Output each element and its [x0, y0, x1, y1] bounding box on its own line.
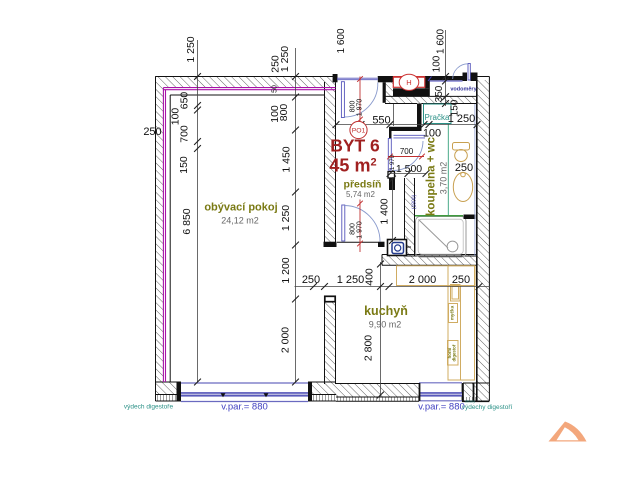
- svg-text:Pračka: Pračka: [425, 113, 450, 122]
- svg-text:1 250: 1 250: [185, 36, 197, 62]
- svg-text:v.par.= 880: v.par.= 880: [418, 402, 465, 413]
- svg-text:1 970: 1 970: [357, 221, 364, 239]
- svg-text:1 600: 1 600: [336, 28, 347, 53]
- svg-text:250: 250: [455, 162, 473, 174]
- svg-text:vodoměry: vodoměry: [450, 87, 477, 93]
- svg-text:2 000: 2 000: [409, 274, 437, 286]
- svg-text:H: H: [406, 78, 411, 87]
- svg-text:24,12 m2: 24,12 m2: [221, 216, 259, 226]
- svg-text:1 250: 1 250: [337, 274, 365, 286]
- svg-text:100: 100: [432, 55, 443, 72]
- svg-text:1 450: 1 450: [281, 146, 293, 172]
- svg-text:1 500: 1 500: [396, 163, 422, 175]
- svg-text:700: 700: [400, 147, 414, 156]
- svg-text:3,70 m2: 3,70 m2: [439, 162, 449, 195]
- svg-text:800: 800: [350, 101, 357, 113]
- svg-text:6 850: 6 850: [181, 208, 193, 234]
- svg-text:myčka: myčka: [450, 305, 455, 320]
- svg-text:digestoř: digestoř: [452, 344, 457, 361]
- svg-text:5,74 m2: 5,74 m2: [346, 190, 375, 199]
- svg-text:2 000: 2 000: [280, 327, 292, 353]
- svg-text:250: 250: [302, 274, 320, 286]
- svg-text:předsíň: předsíň: [344, 179, 382, 191]
- svg-text:1 250: 1 250: [280, 205, 292, 231]
- svg-text:50: 50: [272, 85, 279, 93]
- svg-text:150: 150: [178, 156, 190, 174]
- svg-text:250: 250: [452, 274, 470, 286]
- svg-text:1 600: 1 600: [436, 29, 447, 54]
- svg-text:výdechy digestoří: výdechy digestoří: [462, 404, 513, 411]
- svg-text:100: 100: [170, 108, 182, 126]
- svg-text:(1800): (1800): [412, 194, 418, 209]
- svg-text:obývací pokoj: obývací pokoj: [204, 202, 277, 214]
- svg-text:650: 650: [179, 92, 191, 110]
- svg-text:1 250: 1 250: [279, 46, 291, 72]
- svg-text:1 200: 1 200: [280, 257, 292, 283]
- svg-text:1 970: 1 970: [357, 99, 364, 117]
- svg-text:400: 400: [364, 268, 376, 286]
- svg-text:PO1: PO1: [352, 128, 366, 135]
- svg-text:45 m2: 45 m2: [329, 156, 376, 176]
- svg-text:250: 250: [143, 126, 161, 138]
- svg-text:otvory: otvory: [465, 400, 475, 404]
- svg-text:BYT 6: BYT 6: [330, 136, 380, 156]
- svg-text:800: 800: [350, 223, 357, 235]
- svg-text:koupelna + wc: koupelna + wc: [426, 136, 438, 216]
- svg-text:9,90 m2: 9,90 m2: [369, 320, 402, 330]
- svg-text:150: 150: [450, 99, 461, 116]
- svg-text:2 800: 2 800: [363, 335, 375, 361]
- svg-text:1 400: 1 400: [379, 198, 391, 224]
- svg-text:výdech digestoře: výdech digestoře: [124, 404, 174, 411]
- svg-text:700: 700: [179, 125, 191, 143]
- svg-text:800: 800: [278, 104, 290, 122]
- svg-text:350: 350: [434, 85, 445, 102]
- svg-text:550: 550: [372, 115, 390, 127]
- svg-text:v.par.= 880: v.par.= 880: [221, 402, 268, 413]
- svg-text:kuchyň: kuchyň: [364, 304, 408, 318]
- svg-text:1 970: 1 970: [390, 154, 396, 170]
